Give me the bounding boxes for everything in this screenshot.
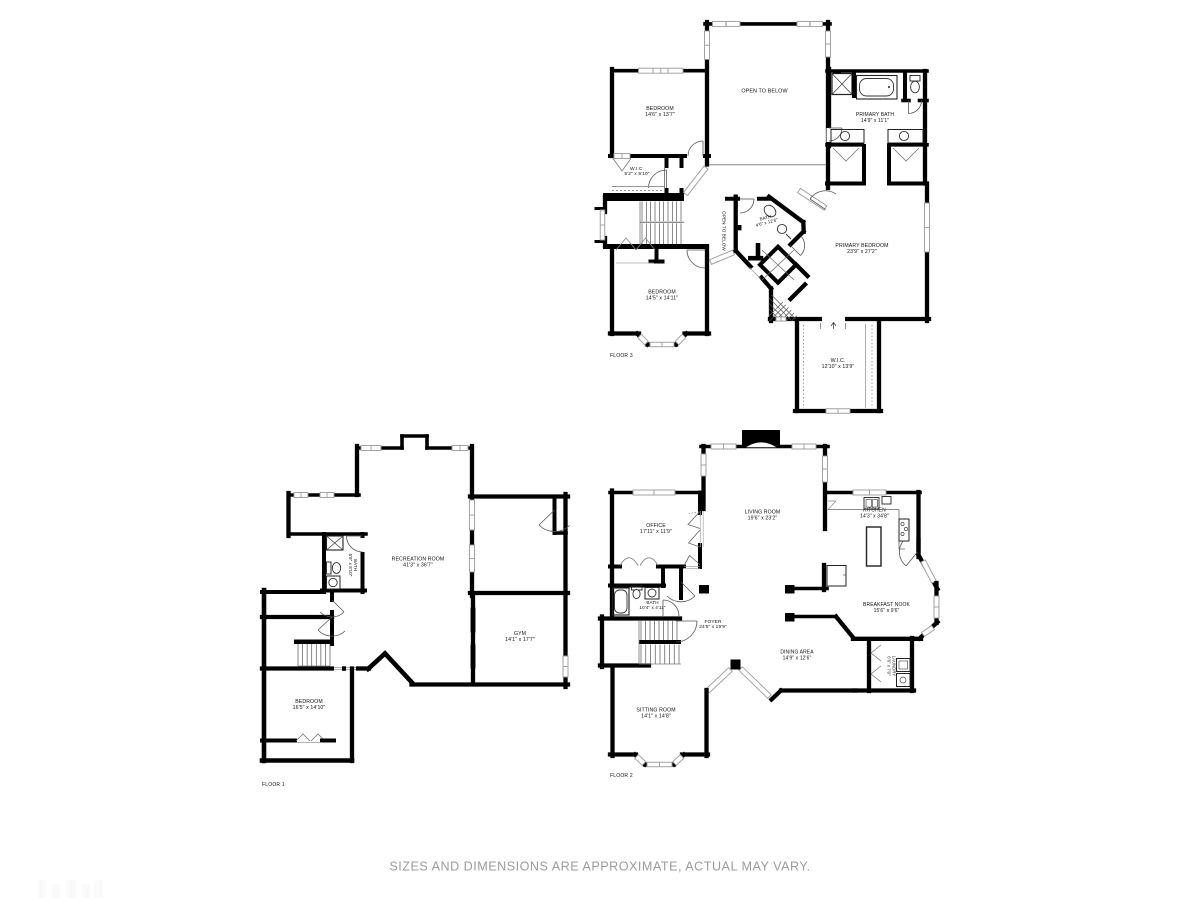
svg-text:FLOOR 2: FLOOR 2 (610, 773, 633, 779)
svg-text:SITTING ROOM14'1" x 14'8": SITTING ROOM14'1" x 14'8" (636, 708, 675, 720)
svg-text:LIVING ROOM19'6" x 23'2": LIVING ROOM19'6" x 23'2" (745, 510, 781, 522)
svg-text:BEDROOM14'5" x 14'11": BEDROOM14'5" x 14'11" (646, 290, 678, 302)
svg-text:SIZES AND DIMENSIONS ARE APPRO: SIZES AND DIMENSIONS ARE APPROXIMATE, AC… (389, 860, 810, 874)
svg-text:FLOOR 3: FLOOR 3 (610, 353, 633, 359)
svg-text:PRIMARY BATH14'9" x 11'1": PRIMARY BATH14'9" x 11'1" (856, 112, 894, 124)
svg-text:FLOOR 1: FLOOR 1 (262, 782, 285, 788)
svg-text:OPEN TO BELOW: OPEN TO BELOW (741, 89, 788, 95)
svg-text:OPEN TO BELOW: OPEN TO BELOW (722, 211, 727, 251)
svg-text:DINING AREA14'9" x 12'6": DINING AREA14'9" x 12'6" (780, 650, 814, 662)
svg-text:BEDROOM16'5" x 14'10": BEDROOM16'5" x 14'10" (293, 699, 326, 711)
svg-text:BEDROOM14'6" x 13'7": BEDROOM14'6" x 13'7" (645, 106, 675, 118)
svg-text:LAUNDRY6'6" x 7'0": LAUNDRY6'6" x 7'0" (887, 656, 897, 677)
